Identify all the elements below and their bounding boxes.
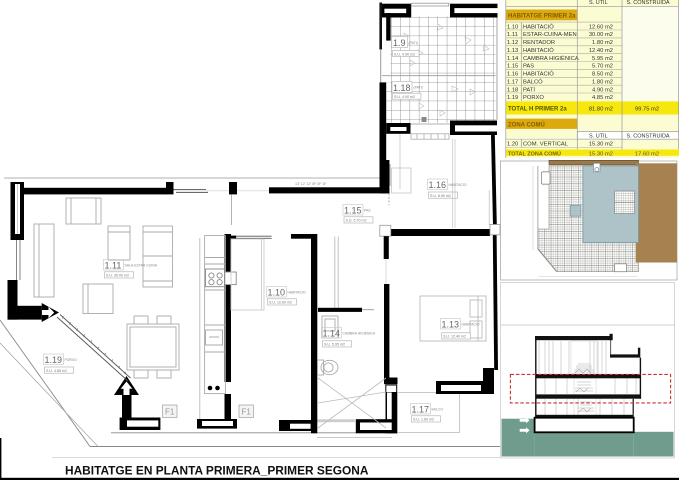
svg-text:SALA-ESTAR-CUINA: SALA-ESTAR-CUINA: [125, 264, 158, 268]
svg-text:1.20: 1.20: [507, 142, 518, 148]
svg-text:1.16: 1.16: [429, 180, 447, 190]
svg-text:12.60 m2: 12.60 m2: [589, 24, 613, 30]
svg-text:15.30 m2: 15.30 m2: [589, 151, 613, 157]
svg-text:S. CONSTRUIDA: S. CONSTRUIDA: [627, 0, 670, 6]
svg-text:1.19: 1.19: [507, 95, 518, 101]
svg-text:1.16: 1.16: [507, 72, 518, 78]
svg-text:S. CONSTRUIDA: S. CONSTRUIDA: [627, 134, 670, 140]
svg-text:S.U. 1.80 m2: S.U. 1.80 m2: [413, 418, 434, 422]
svg-text:1.13: 1.13: [507, 48, 518, 54]
svg-text:1.11: 1.11: [105, 261, 122, 271]
svg-text:(PATI): (PATI): [409, 41, 418, 45]
svg-text:15.30 m2: 15.30 m2: [589, 142, 613, 148]
svg-text:TOTAL ZONA COMÚ: TOTAL ZONA COMÚ: [508, 150, 561, 157]
svg-text:CAMBRA HIGIÈNICA: CAMBRA HIGIÈNICA: [523, 55, 579, 62]
svg-text:PORXO: PORXO: [65, 358, 78, 362]
svg-text:1.18: 1.18: [507, 87, 518, 93]
svg-text:S.U. 4.85 m2: S.U. 4.85 m2: [46, 369, 67, 373]
svg-text:8.50 m2: 8.50 m2: [592, 72, 613, 78]
svg-text:1.18: 1.18: [393, 83, 411, 93]
svg-text:HABITACIO: HABITACIO: [449, 183, 467, 187]
svg-text:PAS: PAS: [523, 64, 534, 70]
svg-text:1.15: 1.15: [344, 206, 362, 216]
svg-text:13′ 12′ 12′ 0F 0F 1F: 13′ 12′ 12′ 0F 0F 1F: [295, 182, 327, 186]
svg-text:1.17: 1.17: [507, 80, 518, 86]
svg-text:S.U. 12.60 m2: S.U. 12.60 m2: [269, 301, 292, 305]
svg-text:HABITACIÓ: HABITACIÓ: [523, 71, 554, 78]
svg-text:5.95 m2: 5.95 m2: [592, 56, 613, 62]
svg-text:TOTAL H PRIMER 2a: TOTAL H PRIMER 2a: [508, 107, 567, 113]
svg-text:F1: F1: [165, 408, 175, 417]
svg-text:S. UTIL: S. UTIL: [589, 134, 608, 140]
svg-text:PATÍ: PATÍ: [523, 86, 535, 93]
svg-text:1.9: 1.9: [393, 38, 406, 48]
svg-text:HABITACIÓ: HABITACIÓ: [523, 23, 554, 30]
svg-text:S.U. 30.00 m2: S.U. 30.00 m2: [106, 274, 129, 278]
svg-text:HABITATGE EN PLANTA PRIMERA_PR: HABITATGE EN PLANTA PRIMERA_PRIMER SEGON…: [65, 464, 369, 478]
svg-text:17.60 m2: 17.60 m2: [635, 151, 659, 157]
svg-text:(PATI): (PATI): [414, 86, 423, 90]
svg-text:5.70 m2: 5.70 m2: [592, 64, 613, 70]
svg-text:99.75 m2: 99.75 m2: [635, 107, 659, 113]
svg-text:ESTAR-CUINA-MEN: ESTAR-CUINA-MEN: [523, 32, 577, 38]
svg-text:1.12: 1.12: [507, 40, 518, 46]
svg-text:1.11: 1.11: [507, 32, 518, 38]
svg-text:HABITACIO: HABITACIO: [288, 291, 306, 295]
svg-text:RENTADOR: RENTADOR: [523, 40, 555, 46]
svg-text:1.19: 1.19: [45, 355, 63, 365]
svg-text:COM. VERTICAL: COM. VERTICAL: [523, 142, 569, 148]
svg-text:HABITACIÓ: HABITACIÓ: [523, 47, 554, 54]
svg-text:1.17: 1.17: [412, 405, 430, 415]
svg-text:81.80 m2: 81.80 m2: [589, 107, 613, 113]
svg-text:12.40 m2: 12.40 m2: [589, 48, 613, 54]
svg-text:BALCÓ: BALCÓ: [523, 79, 543, 86]
svg-text:1.10: 1.10: [268, 288, 286, 298]
svg-text:PORXO: PORXO: [523, 95, 544, 101]
svg-text:1.13: 1.13: [442, 320, 460, 330]
svg-text:S. UTIL: S. UTIL: [589, 0, 608, 6]
svg-text:1.80 m2: 1.80 m2: [592, 40, 613, 46]
svg-text:ZONA COMÚ: ZONA COMÚ: [508, 121, 545, 128]
svg-text:HABITATGE PRIMER 2a: HABITATGE PRIMER 2a: [508, 14, 576, 20]
svg-text:4.85 m2: 4.85 m2: [592, 95, 613, 101]
svg-text:1.14: 1.14: [507, 56, 519, 62]
svg-text:F1: F1: [242, 408, 252, 417]
svg-text:S.U. 4.90 m2: S.U. 4.90 m2: [394, 95, 415, 99]
svg-text:30.00 m2: 30.00 m2: [589, 32, 613, 38]
svg-text:S.U. 5.70 m2: S.U. 5.70 m2: [346, 219, 367, 223]
svg-text:S.U. 12.40 m2: S.U. 12.40 m2: [443, 335, 466, 339]
svg-text:S.U. 8.50 m2: S.U. 8.50 m2: [430, 194, 451, 198]
svg-text:1.80 m2: 1.80 m2: [592, 80, 613, 86]
svg-text:S.U. 4.90 m2: S.U. 4.90 m2: [394, 52, 415, 56]
svg-text:PAS: PAS: [364, 209, 371, 213]
svg-text:HABITACIO: HABITACIO: [462, 323, 480, 327]
svg-text:BALCO: BALCO: [432, 408, 444, 412]
svg-text:CAMBRA HIGIÈNICA: CAMBRA HIGIÈNICA: [343, 331, 376, 336]
svg-text:S.U. 5.95 m2: S.U. 5.95 m2: [324, 343, 345, 347]
svg-text:1.10: 1.10: [507, 24, 518, 30]
svg-text:1.15: 1.15: [507, 64, 518, 70]
svg-text:1.14: 1.14: [323, 329, 341, 339]
svg-text:4.90 m2: 4.90 m2: [592, 87, 613, 93]
